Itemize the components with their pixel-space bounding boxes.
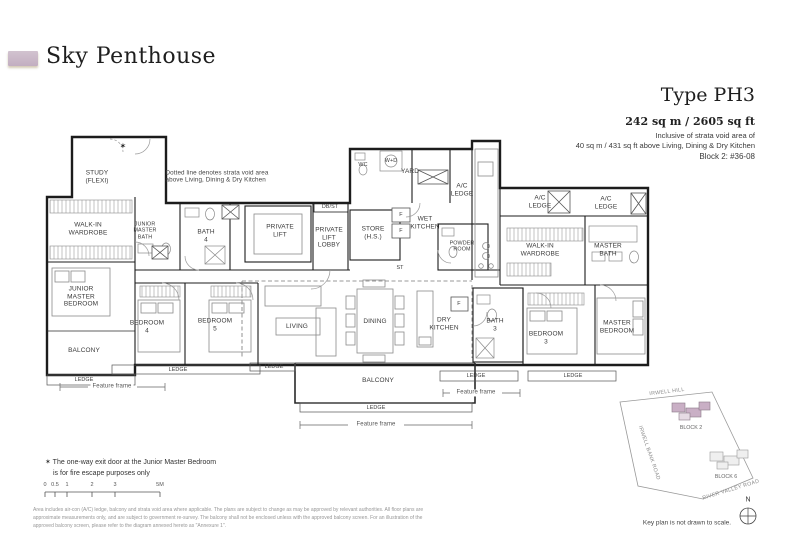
label-fridge-1: F: [399, 212, 402, 218]
label-wc: WC: [358, 162, 367, 168]
key-plan-note: Key plan is not drawn to scale.: [643, 520, 731, 527]
label-fridge-3: F: [457, 301, 460, 307]
label-yard: YARD: [401, 168, 419, 176]
label-feature-frame-center: Feature frame: [355, 421, 398, 428]
label-ac-ledge-mid: A/C LEDGE: [529, 194, 552, 209]
fire-escape-note: ✶ The one-way exit door at the Junior Ma…: [45, 458, 216, 480]
label-bedroom-3: BEDROOM 3: [529, 330, 563, 345]
scale-tick-label: 0.5: [51, 482, 59, 488]
label-void-note: Dotted line denotes strata void area abo…: [165, 170, 268, 185]
scale-tick-label: 1: [65, 482, 68, 488]
label-junior-master-bath: JUNIOR MASTER BATH: [133, 221, 156, 240]
label-ledge-living: LEDGE: [265, 364, 284, 370]
label-living: LIVING: [286, 323, 308, 331]
scale-tick-label: 3: [113, 482, 116, 488]
scale-tick-label: 5M: [156, 482, 164, 488]
label-junior-master-bedroom: JUNIOR MASTER BEDROOM: [64, 286, 98, 309]
label-walk-in-wardrobe-left: WALK-IN WARDROBE: [69, 221, 108, 236]
key-plan-block2-label: BLOCK 2: [680, 425, 702, 431]
label-ledge-master: LEDGE: [564, 373, 583, 379]
label-ledge-bedrooms: LEDGE: [169, 367, 188, 373]
label-fridge-2: F: [399, 228, 402, 234]
label-balcony-center: BALCONY: [362, 377, 394, 385]
label-study: STUDY (FLEXI): [85, 169, 108, 184]
scale-tick-label: 0: [43, 482, 46, 488]
label-dry-kitchen: DRY KITCHEN: [429, 316, 458, 331]
fire-escape-note-line2: is for fire escape purposes only: [53, 469, 216, 480]
disclaimer-text: Area includes air-con (A/C) ledge, balco…: [33, 506, 433, 530]
fire-escape-note-line1: ✶ The one-way exit door at the Junior Ma…: [45, 458, 216, 469]
label-dining: DINING: [363, 318, 386, 326]
label-db-st: DB/ST: [322, 204, 338, 210]
label-wet-kitchen: WET KITCHEN: [410, 215, 439, 230]
label-ledge-balcony: LEDGE: [367, 405, 386, 411]
key-plan-block6-label: BLOCK 6: [715, 474, 737, 480]
label-walk-in-wardrobe-right: WALK-IN WARDROBE: [521, 242, 560, 257]
label-ledge-left-balcony: LEDGE: [75, 377, 94, 383]
label-ledge-bath3: LEDGE: [467, 373, 486, 379]
label-bedroom-5: BEDROOM 5: [198, 317, 232, 332]
label-st: ST: [396, 265, 403, 271]
scale-tick-label: 2: [90, 482, 93, 488]
label-ac-ledge-yard: A/C LEDGE: [451, 182, 474, 197]
label-feature-frame-left: Feature frame: [91, 383, 134, 390]
label-powder-room: POWDER ROOM: [450, 241, 475, 254]
label-bath-3: BATH 3: [486, 317, 503, 332]
label-master-bedroom: MASTER BEDROOM: [600, 319, 634, 334]
label-private-lift: PRIVATE LIFT: [266, 223, 294, 238]
label-feature-frame-right: Feature frame: [455, 389, 498, 396]
label-master-bath: MASTER BATH: [594, 242, 622, 257]
label-bath-4: BATH 4: [197, 228, 214, 243]
label-store: STORE (H.S.): [362, 225, 385, 240]
label-bedroom-4: BEDROOM 4: [130, 319, 164, 334]
label-balcony-left: BALCONY: [68, 347, 100, 355]
compass-north-label: N: [745, 497, 750, 504]
label-star-mark: ✶: [120, 141, 127, 150]
label-private-lift-lobby: PRIVATE LIFT LOBBY: [315, 227, 343, 250]
label-ac-ledge-right: A/C LEDGE: [595, 195, 618, 210]
label-w-d: W+D: [385, 158, 397, 164]
